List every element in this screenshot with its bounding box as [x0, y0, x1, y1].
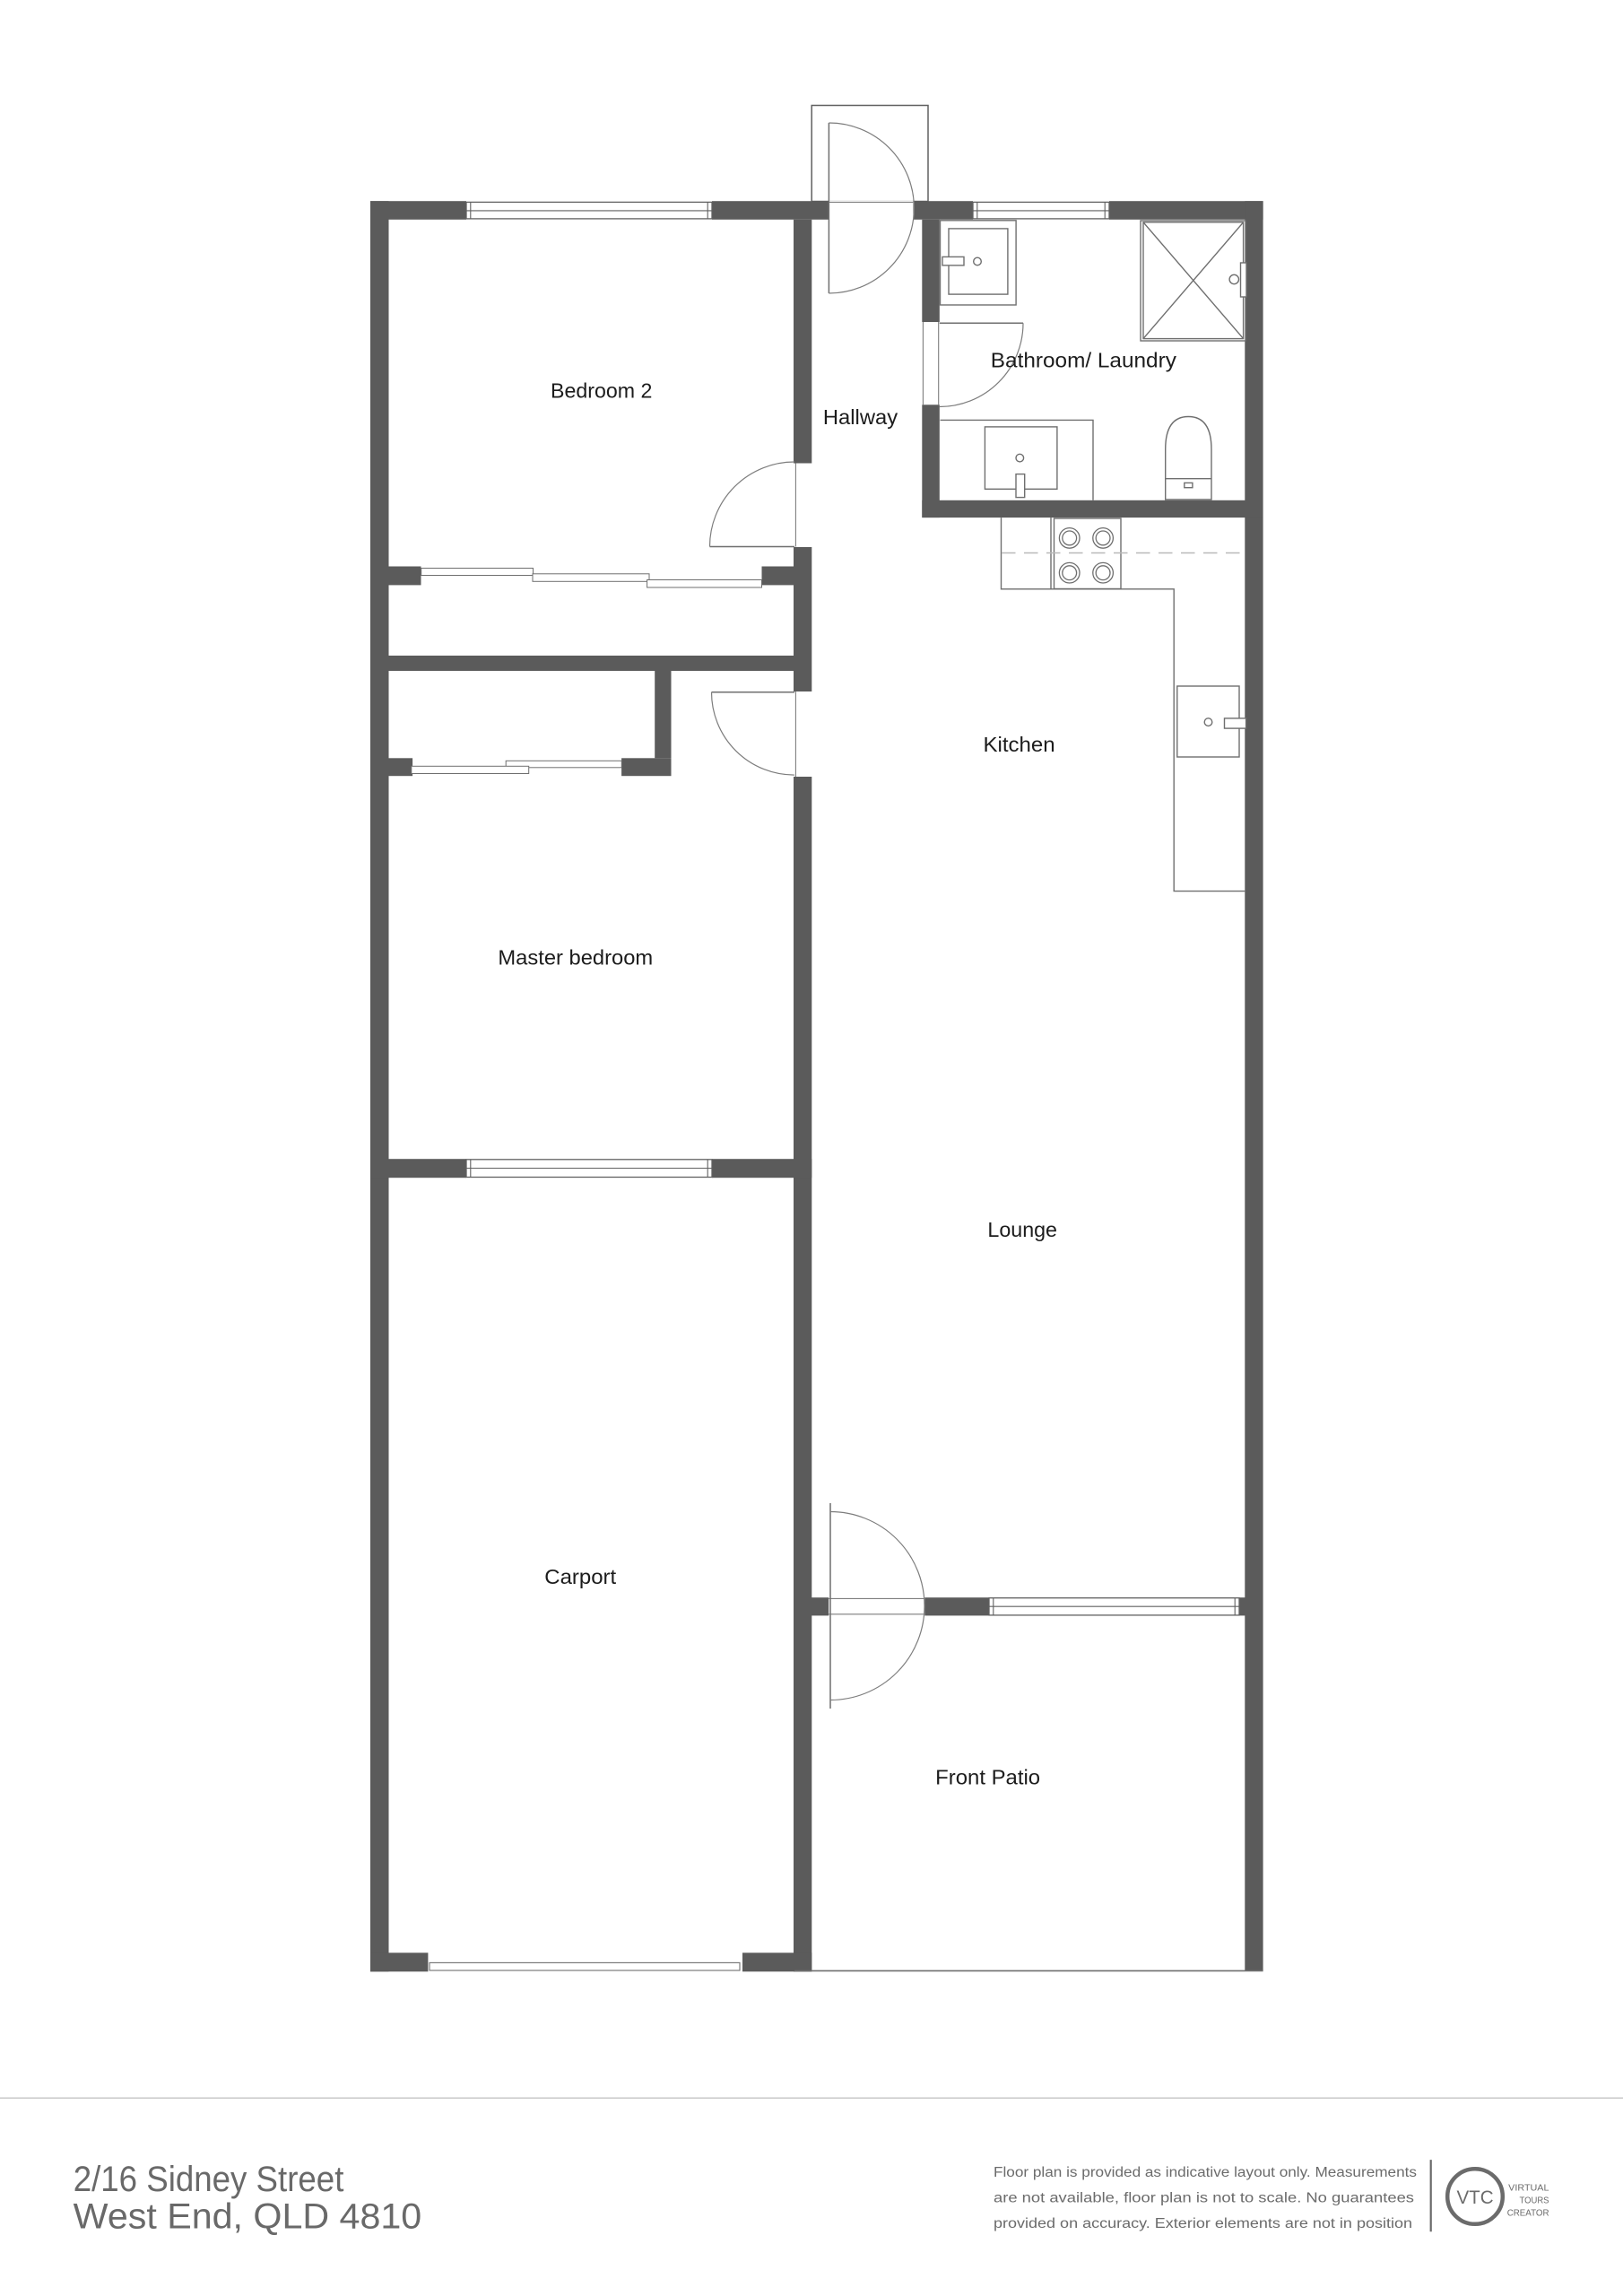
svg-text:West End, QLD 4810: West End, QLD 4810: [74, 2197, 422, 2237]
svg-text:Bedroom 2: Bedroom 2: [551, 379, 652, 403]
svg-text:Front Patio: Front Patio: [935, 1766, 1040, 1789]
svg-text:Hallway: Hallway: [823, 405, 898, 429]
svg-text:Floor plan is provided as indi: Floor plan is provided as indicative lay…: [994, 2165, 1417, 2180]
svg-text:TOURS: TOURS: [1520, 2196, 1549, 2206]
svg-text:provided on accuracy. Exterior: provided on accuracy. Exterior elements …: [994, 2216, 1412, 2231]
svg-text:VTC: VTC: [1456, 2186, 1493, 2208]
svg-text:VIRTUAL: VIRTUAL: [1508, 2183, 1549, 2193]
svg-text:CREATOR: CREATOR: [1507, 2209, 1549, 2219]
svg-text:Bathroom/ Laundry: Bathroom/ Laundry: [991, 349, 1177, 372]
svg-text:Carport: Carport: [544, 1565, 617, 1588]
svg-text:Lounge: Lounge: [987, 1218, 1057, 1241]
svg-text:Kitchen: Kitchen: [984, 733, 1055, 756]
svg-text:Master bedroom: Master bedroom: [498, 946, 653, 970]
svg-text:are not available, floor plan: are not available, floor plan is not to …: [994, 2190, 1414, 2205]
svg-text:2/16 Sidney Street: 2/16 Sidney Street: [74, 2160, 344, 2199]
